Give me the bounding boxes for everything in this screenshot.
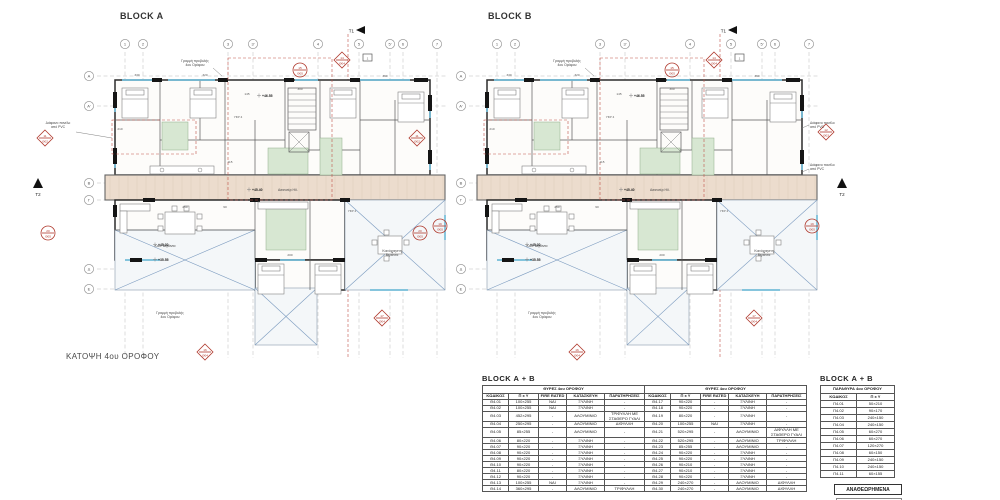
window-cell: 240×150	[857, 415, 895, 422]
svg-text:Θ04: Θ04	[202, 354, 208, 358]
door-cell: 80×220	[671, 412, 701, 422]
door-cell: -	[539, 412, 567, 422]
door-cell: Θ4.05	[483, 428, 509, 438]
window-row: Π4.04240×150	[821, 422, 895, 429]
revision-marker: 17Θ04	[746, 310, 762, 326]
sheet-title: ΚΑΤΟΨΗ 4ου ΟΡΟΦΟΥ	[66, 352, 160, 361]
revision-marker: 20Θ05	[41, 226, 55, 240]
svg-text:Α: Α	[88, 74, 91, 79]
door-cell: ΤΡΙΦΥΛΛΗ	[605, 486, 645, 492]
door-section-title: ΘΥΡΕΣ 4ου ΟΡΟΦΟΥ	[645, 386, 807, 394]
floor-plans-canvas: 1233'455'67ΑΑ'ΒΓΔΕT1T215Θ0514Θ0411Θ0220Θ…	[0, 0, 1000, 372]
window-cell: 240×150	[857, 457, 895, 464]
revision-marker: 11Θ02	[37, 130, 53, 146]
svg-text:5': 5'	[761, 42, 764, 47]
door-cell: 240×270	[671, 486, 701, 492]
svg-text:15: 15	[298, 66, 302, 70]
svg-text:250: 250	[182, 205, 187, 209]
svg-text:Θ04: Θ04	[339, 62, 345, 66]
door-cell: Θ4.21	[645, 428, 671, 438]
svg-text:Γραμμή προβολής4ου Ορόφου: Γραμμή προβολής4ου Ορόφου	[553, 59, 581, 67]
svg-text:17: 17	[380, 314, 384, 318]
door-section-title: ΘΥΡΕΣ 4ου ΟΡΟΦΟΥ	[483, 386, 645, 394]
svg-text:Β: Β	[88, 181, 91, 186]
svg-text:+45.40: +45.40	[624, 188, 635, 192]
window-cell: 60×155	[857, 471, 895, 478]
svg-text:Γραμμή προβολής4ου Ορόφου: Γραμμή προβολής4ου Ορόφου	[528, 311, 556, 319]
svg-text:20: 20	[46, 229, 50, 233]
svg-text:Ασανσέρ ΗΛ.: Ασανσέρ ΗΛ.	[278, 188, 298, 192]
door-row: Θ4.14360×295-ΑΛΟΥΜΙΝΙΟΤΡΙΦΥΛΛΗΘ4.30240×2…	[483, 486, 807, 492]
svg-text:Δ: Δ	[88, 267, 91, 272]
svg-text:Α': Α'	[87, 104, 91, 109]
svg-text:T1: T1	[349, 29, 355, 34]
svg-text:Δ: Δ	[460, 267, 463, 272]
svg-text:+46.55: +46.55	[634, 94, 645, 98]
window-cell: Π4.10	[821, 464, 857, 471]
door-cell: ΑΛΟΥΜΙΝΙΟ	[729, 486, 767, 492]
window-schedule: BLOCK A + B ΠΑΡΑΘΥΡΑ 4ου ΟΡΟΦΟΥΚΩΔΙΚΟΣΠ …	[820, 374, 902, 500]
revision-marker: 16Θ04	[197, 344, 213, 360]
door-cell: Θ4.30	[645, 486, 671, 492]
svg-text:330: 330	[134, 73, 139, 77]
window-cell: 120×270	[857, 443, 895, 450]
door-cell: -	[767, 412, 807, 422]
svg-text:Θ05: Θ05	[417, 235, 423, 239]
door-cell: Θ4.19	[645, 412, 671, 422]
revision-marker: 20Θ05	[413, 226, 427, 240]
svg-text:145: 145	[244, 92, 249, 96]
svg-text:1: 1	[367, 56, 369, 60]
door-col-header: ΠΑΡΑΤΗΡΗΣΕΙΣ	[767, 394, 807, 400]
window-row: Π4.09240×150	[821, 457, 895, 464]
window-cell: Π4.04	[821, 422, 857, 429]
door-row: Θ4.03452×295-ΑΛΟΥΜΙΝΙΟΤΡΙΦΥΛΛΗ ΜΕ ΣΤΑΘΕΡ…	[483, 412, 807, 422]
svg-text:+45.40: +45.40	[252, 188, 263, 192]
svg-text:Θ05: Θ05	[669, 72, 675, 76]
window-row: Π4.0660×270	[821, 436, 895, 443]
svg-text:3': 3'	[252, 42, 255, 47]
svg-text:ΥΣΡ 4: ΥΣΡ 4	[348, 209, 357, 213]
svg-text:Θ02: Θ02	[414, 140, 420, 144]
svg-text:Θ05: Θ05	[45, 235, 51, 239]
svg-text:11: 11	[415, 134, 418, 138]
window-cell: Π4.03	[821, 415, 857, 422]
svg-text:320: 320	[202, 73, 207, 77]
svg-text:360: 360	[754, 74, 759, 78]
window-cell: 240×150	[857, 464, 895, 471]
svg-text:+35.55: +35.55	[158, 258, 169, 262]
window-cell: Π4.09	[821, 457, 857, 464]
svg-text:17: 17	[752, 314, 756, 318]
block-a-plan: 1233'455'67ΑΑ'ΒΓΔΕT1T215Θ0514Θ0411Θ0220Θ…	[33, 26, 447, 360]
revision-marker: 16Θ04	[569, 344, 585, 360]
svg-text:Γραμμή προβολής4ου Ορόφου: Γραμμή προβολής4ου Ορόφου	[181, 59, 209, 67]
svg-text:5': 5'	[389, 42, 392, 47]
svg-text:+35.55: +35.55	[530, 258, 541, 262]
door-cell: 520×295	[671, 428, 701, 438]
svg-text:19: 19	[810, 222, 814, 226]
svg-text:Θ03: Θ03	[823, 134, 829, 138]
svg-text:3': 3'	[624, 42, 627, 47]
door-cell: Θ4.03	[483, 412, 509, 422]
svg-text:145: 145	[616, 92, 621, 96]
svg-text:200: 200	[659, 253, 664, 257]
door-cell: 360×295	[509, 486, 539, 492]
svg-text:Διάφανο πανέλοαπό PVC: Διάφανο πανέλοαπό PVC	[810, 121, 835, 129]
door-cell: -	[539, 428, 567, 438]
svg-text:300: 300	[669, 87, 674, 91]
svg-text:11: 11	[43, 134, 46, 138]
window-row: Π4.0290×170	[821, 408, 895, 415]
door-col-header: ΚΩΔΙΚΟΣ	[483, 394, 509, 400]
svg-text:ΥΣΡ 4: ΥΣΡ 4	[606, 115, 615, 119]
door-cell: -	[701, 428, 729, 438]
door-cell: 85×255	[509, 428, 539, 438]
door-schedule-title: BLOCK A + B	[482, 374, 807, 383]
window-cell: 90×170	[857, 408, 895, 415]
svg-text:16: 16	[575, 348, 579, 352]
door-cell: ΑΛΟΥΜΙΝΙΟ	[567, 486, 605, 492]
window-cell: 60×270	[857, 436, 895, 443]
svg-text:+45.30: +45.30	[530, 243, 541, 247]
svg-text:ΥΣΡ 4: ΥΣΡ 4	[720, 209, 729, 213]
svg-text:90: 90	[223, 205, 227, 209]
svg-text:330: 330	[506, 73, 511, 77]
svg-text:115: 115	[228, 160, 233, 164]
door-col-header: ΠΑΡΑΤΗΡΗΣΕΙΣ	[605, 394, 645, 400]
window-cell: 240×150	[857, 422, 895, 429]
door-cell: -	[701, 412, 729, 422]
svg-text:250: 250	[554, 205, 559, 209]
window-row: Π4.1160×155	[821, 471, 895, 478]
section-marker-t2	[837, 178, 847, 188]
svg-text:115: 115	[600, 160, 605, 164]
window-col-header: ΚΩΔΙΚΟΣ	[821, 394, 857, 401]
door-cell: ΔΙΦΥΛΛΗ ΜΕ ΣΤΑΘΕΡΟ ΓΥΑΛΙ	[767, 428, 807, 438]
door-cell: ΑΛΟΥΜΙΝΙΟ	[729, 428, 767, 438]
svg-text:Θ05: Θ05	[437, 228, 443, 232]
svg-text:T2: T2	[839, 192, 845, 197]
svg-text:20: 20	[418, 229, 422, 233]
window-cell: Π4.06	[821, 436, 857, 443]
door-cell: ΑΛΟΥΜΙΝΙΟ	[567, 428, 605, 438]
svg-text:320: 320	[574, 73, 579, 77]
svg-text:16: 16	[203, 348, 207, 352]
door-cell: -	[539, 486, 567, 492]
drawing-sheet: BLOCK A BLOCK B 1233'455'67ΑΑ'ΒΓΔΕT1T215…	[0, 0, 1000, 500]
window-cell: Π4.08	[821, 450, 857, 457]
window-cell: Π4.02	[821, 408, 857, 415]
svg-text:Θ05: Θ05	[809, 228, 815, 232]
svg-text:14: 14	[340, 56, 344, 60]
window-col-header: Π x Y	[857, 394, 895, 401]
svg-text:Γραμμή προβολής4ου Ορόφου: Γραμμή προβολής4ου Ορόφου	[156, 311, 184, 319]
window-cell: 60×270	[857, 429, 895, 436]
svg-text:14: 14	[712, 56, 716, 60]
door-cell: -	[605, 428, 645, 438]
window-cell: Π4.07	[821, 443, 857, 450]
svg-text:Θ04: Θ04	[379, 320, 385, 324]
window-row: Π4.10240×150	[821, 464, 895, 471]
door-col-header: FIRE RATED	[539, 394, 567, 400]
svg-text:Ε: Ε	[460, 287, 463, 292]
window-schedule-table: ΠΑΡΑΘΥΡΑ 4ου ΟΡΟΦΟΥΚΩΔΙΚΟΣΠ x YΠ4.0150×2…	[820, 385, 895, 478]
svg-text:Θ04: Θ04	[574, 354, 580, 358]
revision-marker: 15Θ05	[665, 63, 679, 77]
svg-text:300: 300	[297, 87, 302, 91]
door-row: Θ4.0585×255-ΑΛΟΥΜΙΝΙΟ-Θ4.21520×295-ΑΛΟΥΜ…	[483, 428, 807, 438]
svg-text:Α': Α'	[459, 104, 463, 109]
svg-text:90: 90	[595, 205, 599, 209]
svg-text:+46.55: +46.55	[262, 94, 273, 98]
window-cell: Π4.01	[821, 401, 857, 408]
svg-text:T2: T2	[35, 192, 41, 197]
revision-marker: 19Θ05	[805, 219, 819, 233]
window-cell: Π4.05	[821, 429, 857, 436]
door-schedule-table: ΘΥΡΕΣ 4ου ΟΡΟΦΟΥΘΥΡΕΣ 4ου ΟΡΟΦΟΥΚΩΔΙΚΟΣΠ…	[482, 385, 807, 492]
revision-marker: 14Θ04	[334, 52, 350, 68]
window-row: Π4.03240×150	[821, 415, 895, 422]
section-marker-t1	[356, 26, 365, 34]
revision-marker: 19Θ05	[433, 219, 447, 233]
section-marker-t1	[728, 26, 737, 34]
door-cell: ΞΥΛΙΝΗ	[729, 412, 767, 422]
window-schedule-title: BLOCK A + B	[820, 374, 902, 383]
svg-text:360: 360	[382, 74, 387, 78]
window-row: Π4.07120×270	[821, 443, 895, 450]
window-section-title: ΠΑΡΑΘΥΡΑ 4ου ΟΡΟΦΟΥ	[821, 386, 895, 394]
svg-text:Β: Β	[460, 181, 463, 186]
svg-text:19: 19	[438, 222, 442, 226]
svg-text:200: 200	[287, 253, 292, 257]
revision-marker: 15Θ05	[293, 63, 307, 77]
block-b-plan: 1233'455'67ΑΑ'ΒΓΔΕT1T215Θ0514Θ0411Θ0220Θ…	[409, 26, 847, 360]
svg-text:Θ04: Θ04	[751, 320, 757, 324]
svg-text:Διάφανο πανέλοαπό PVC: Διάφανο πανέλοαπό PVC	[810, 163, 835, 171]
window-cell: 60×150	[857, 450, 895, 457]
svg-text:210: 210	[117, 127, 122, 131]
svg-text:+45.30: +45.30	[158, 243, 169, 247]
svg-text:Ασανσέρ ΗΛ.: Ασανσέρ ΗΛ.	[650, 188, 670, 192]
svg-text:Θ02: Θ02	[42, 140, 48, 144]
door-schedule: BLOCK A + B ΘΥΡΕΣ 4ου ΟΡΟΦΟΥΘΥΡΕΣ 4ου ΟΡ…	[482, 374, 807, 492]
svg-text:Θ04: Θ04	[711, 62, 717, 66]
door-col-header: FIRE RATED	[701, 394, 729, 400]
revision-marker: 14Θ04	[706, 52, 722, 68]
window-row: Π4.0560×270	[821, 429, 895, 436]
svg-text:ΥΣΡ 4: ΥΣΡ 4	[234, 115, 243, 119]
door-col-header: ΚΩΔΙΚΟΣ	[645, 394, 671, 400]
svg-text:210: 210	[489, 127, 494, 131]
door-cell: ΤΡΙΦΥΛΛΗ ΜΕ ΣΤΑΘΕΡΟ ΓΥΑΛΙ	[605, 412, 645, 422]
svg-text:1: 1	[739, 56, 741, 60]
window-row: Π4.0860×150	[821, 450, 895, 457]
door-cell: 452×295	[509, 412, 539, 422]
svg-text:Ε: Ε	[88, 287, 91, 292]
door-cell: ΔΙΦΥΛΛΗ	[767, 486, 807, 492]
svg-text:Θ05: Θ05	[297, 72, 303, 76]
door-cell: Θ4.14	[483, 486, 509, 492]
door-cell: -	[701, 486, 729, 492]
window-row: Π4.0150×210	[821, 401, 895, 408]
section-marker-t2	[33, 178, 43, 188]
window-cell: 50×210	[857, 401, 895, 408]
svg-text:15: 15	[670, 66, 674, 70]
svg-text:Διάφανο πανέλοαπό PVC: Διάφανο πανέλοαπό PVC	[46, 121, 71, 129]
svg-text:Α: Α	[460, 74, 463, 79]
door-cell: ΑΛΟΥΜΙΝΙΟ	[567, 412, 605, 422]
revision-marker: 17Θ04	[374, 310, 390, 326]
revision-box: ΑΝΑΘΕΩΡΗΜΕΝΑ	[834, 484, 902, 495]
window-cell: Π4.11	[821, 471, 857, 478]
svg-text:T1: T1	[721, 29, 727, 34]
svg-text:12: 12	[824, 128, 828, 132]
